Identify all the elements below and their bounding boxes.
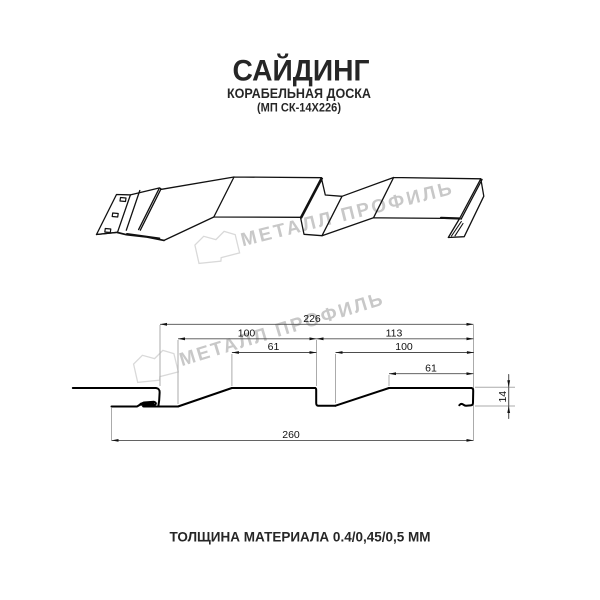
- svg-text:61: 61: [425, 362, 437, 374]
- svg-text:113: 113: [386, 327, 403, 339]
- svg-text:МЕТАЛЛ ПРОФИЛЬ: МЕТАЛЛ ПРОФИЛЬ: [177, 289, 387, 371]
- svg-text:(МП СК-14Х226): (МП СК-14Х226): [257, 101, 341, 115]
- svg-text:100: 100: [238, 327, 256, 339]
- svg-text:260: 260: [282, 429, 300, 441]
- svg-text:ТОЛЩИНА МАТЕРИАЛА 0.4/0,45/0,5: ТОЛЩИНА МАТЕРИАЛА 0.4/0,45/0,5 ММ: [170, 530, 431, 545]
- svg-text:14: 14: [497, 391, 509, 403]
- svg-text:САЙДИНГ: САЙДИНГ: [233, 54, 370, 88]
- svg-text:61: 61: [268, 341, 280, 353]
- svg-text:100: 100: [395, 341, 413, 353]
- svg-text:КОРАБЕЛЬНАЯ ДОСКА: КОРАБЕЛЬНАЯ ДОСКА: [227, 85, 371, 101]
- svg-text:МЕТАЛЛ ПРОФИЛЬ: МЕТАЛЛ ПРОФИЛЬ: [239, 178, 457, 251]
- svg-text:226: 226: [303, 313, 321, 325]
